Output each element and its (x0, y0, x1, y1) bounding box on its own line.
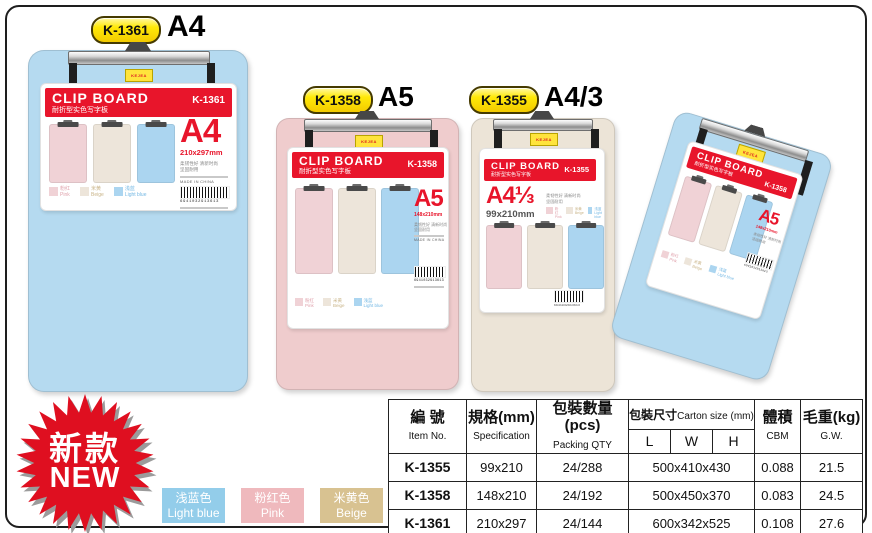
banner-title: CLIP BOARD (299, 155, 383, 167)
swatch-beige (80, 187, 89, 196)
th-cbm: 體積CBM (755, 400, 801, 454)
th-packing-qty: 包裝數量(pcs)Packing QTY (537, 400, 629, 454)
swatch-blue (114, 187, 123, 196)
new-badge-en: NEW (50, 464, 121, 493)
banner-item-code: K-1361 (192, 96, 225, 106)
banner-subtitle: 耐折型实色写字板 (52, 107, 108, 114)
label-size-block: A5 148x210mm 柔韧性好 清新时尚 坚固耐用 MADE IN CHIN… (414, 188, 446, 288)
th-carton-size: 包裝尺寸Carton size (mm) (629, 400, 755, 430)
mini-clipboard-beige (93, 124, 131, 183)
spec-table: 編 號Item No. 規格(mm)Specification 包裝數量(pcs… (388, 399, 863, 533)
barcode (554, 290, 584, 303)
product-label-k1355: CLIP BOARD 耐折型实色写字板 K-1355 A4⅓ 99x210mm … (479, 148, 605, 313)
mini-clipboard-pink (49, 124, 87, 183)
size-title-a4: A4 (167, 12, 205, 42)
banner-item-code: K-1355 (564, 166, 589, 174)
clipboard-k1358-a5-blue-rotated: KEJEA CLIP BOARD 耐折型实色写字板 K-1358 粉红Pink … (609, 102, 835, 381)
size-text: A5 (414, 188, 446, 210)
new-badge-text: 新款 NEW (14, 392, 156, 533)
clipboard-k1358-a5-pink: KEJEA CLIP BOARD 耐折型实色写字板 K-1358 粉红Pink … (276, 108, 458, 390)
banner-subtitle: 耐折型实色写字板 (491, 173, 531, 178)
dimensions-text: 99x210mm (486, 209, 535, 220)
clip-hanger-tab (530, 111, 554, 119)
banner-title: CLIP BOARD (52, 91, 149, 105)
mini-clipboard-pink (295, 188, 333, 274)
feature-text: 柔韧性好 清新时尚 坚固耐用 (414, 222, 446, 232)
table-row-k1355: K-1355 99x210 24/288 500x410x430 0.088 2… (389, 453, 863, 481)
th-specification: 規格(mm)Specification (467, 400, 537, 454)
table-row-k1358: K-1358 148x210 24/192 500x450x370 0.083 … (389, 481, 863, 509)
mini-clipboard-beige (527, 225, 563, 289)
dimensions-text: 210x297mm (180, 148, 234, 157)
feature-text: 柔韧性好 清新时尚 坚固耐用 (546, 193, 581, 204)
swatch-pink (295, 298, 303, 306)
size-title-a5: A5 (378, 83, 414, 111)
label-color-swatches: 粉红Pink 米黄Beige 浅蓝Light blue (660, 250, 736, 281)
swatch-pink (49, 187, 58, 196)
size-title-a43: A4/3 (544, 83, 603, 111)
label-color-swatches: 粉红Pink 米黄Beige 浅蓝Light blue (49, 187, 147, 199)
label-color-swatches: 粉红Pink 米黄Beige 浅蓝Light blue (546, 207, 604, 219)
brand-logo: KEJEA (125, 69, 153, 82)
new-badge-cn: 新款 (49, 433, 121, 464)
mini-clipboards (49, 124, 175, 183)
swatch-beige (684, 257, 693, 266)
clipboard-k1355-a43: KEJEA CLIP BOARD 耐折型实色写字板 K-1355 A4⅓ 99x… (471, 108, 615, 392)
swatch-beige (566, 207, 573, 214)
legend-pink: 粉红色Pink (241, 488, 304, 523)
mini-clipboards (486, 225, 604, 289)
swatch-blue (354, 298, 362, 306)
color-legend: 浅蓝色Light blue 粉红色Pink 米黄色Beige (162, 488, 383, 523)
barcode-number: 6941032913613 (414, 279, 446, 283)
new-starburst: 新款 NEW (14, 392, 156, 533)
swatch-blue (588, 207, 593, 214)
th-item-no: 編 號Item No. (389, 400, 467, 454)
barcode-number: 6941032913613 (180, 200, 234, 204)
label-size-block: A4 210x297mm 柔韧性好 清新时尚 坚固耐用 MADE IN CHIN… (180, 116, 234, 209)
clipboard-k1361-a4: KEJEA CLIP BOARD 耐折型实色写字板 K-1361 粉红Pink … (28, 42, 248, 392)
th-length: L (629, 430, 671, 453)
banner-item-code: K-1358 (407, 160, 437, 169)
product-label-k1361: CLIP BOARD 耐折型实色写字板 K-1361 粉红Pink 米黄Beig… (40, 83, 237, 211)
barcode (414, 266, 446, 278)
catalog-page: K-1361 A4 K-1358 A5 K-1355 A4/3 KEJEA CL… (0, 0, 872, 533)
dimensions-text: 148x210mm (414, 212, 446, 218)
size-text: A4 (180, 116, 234, 146)
clip-hanger-tab (125, 42, 151, 51)
legend-light-blue: 浅蓝色Light blue (162, 488, 225, 523)
fine-print-line (414, 286, 444, 288)
banner-subtitle: 耐折型实色写字板 (299, 169, 351, 176)
legend-beige: 米黄色Beige (320, 488, 383, 523)
barcode-number: 6941032913613 (554, 304, 584, 307)
swatch-pink (546, 207, 553, 214)
mini-clipboard-pink (486, 225, 522, 289)
label-size-block: A4⅓ 99x210mm (486, 185, 535, 220)
fine-print-line (180, 176, 228, 178)
th-height: H (713, 430, 755, 453)
mini-clipboard-blue (568, 225, 604, 289)
brand-logo: KEJEA (530, 133, 558, 146)
banner-title: CLIP BOARD (491, 162, 560, 172)
item-badge-k1361: K-1361 (91, 16, 161, 44)
mini-clipboards (295, 188, 419, 274)
size-text: A4⅓ (486, 185, 535, 207)
barcode (180, 186, 230, 199)
th-gross-weight: 毛重(kg)G.W. (801, 400, 863, 454)
swatch-beige (323, 298, 331, 306)
mini-clipboard-beige (338, 188, 376, 274)
clip-hanger-tab (355, 111, 379, 119)
made-in-text: MADE IN CHINA (180, 179, 234, 184)
label-banner: CLIP BOARD 耐折型实色写字板 K-1355 (484, 159, 596, 181)
swatch-pink (661, 250, 670, 259)
label-barcode-block: 6941032913613 (554, 290, 584, 307)
label-banner: CLIP BOARD 耐折型实色写字板 K-1358 (292, 152, 444, 178)
made-in-text: MADE IN CHINA (414, 238, 446, 242)
fine-print-line (180, 207, 228, 209)
swatch-blue (709, 265, 718, 274)
label-color-swatches: 粉红Pink 米黄Beige 浅蓝Light blue (295, 298, 383, 308)
table-row-k1361: K-1361 210x297 24/144 600x342x525 0.108 … (389, 509, 863, 533)
fine-print-line (414, 235, 444, 237)
th-width: W (671, 430, 713, 453)
product-label-k1358: CLIP BOARD 耐折型实色写字板 K-1358 粉红Pink 米黄Beig… (287, 147, 449, 329)
feature-text: 柔韧性好 清新时尚 坚固耐用 (180, 161, 234, 173)
mini-clipboard-blue (137, 124, 175, 183)
banner-item-code: K-1358 (763, 181, 787, 194)
